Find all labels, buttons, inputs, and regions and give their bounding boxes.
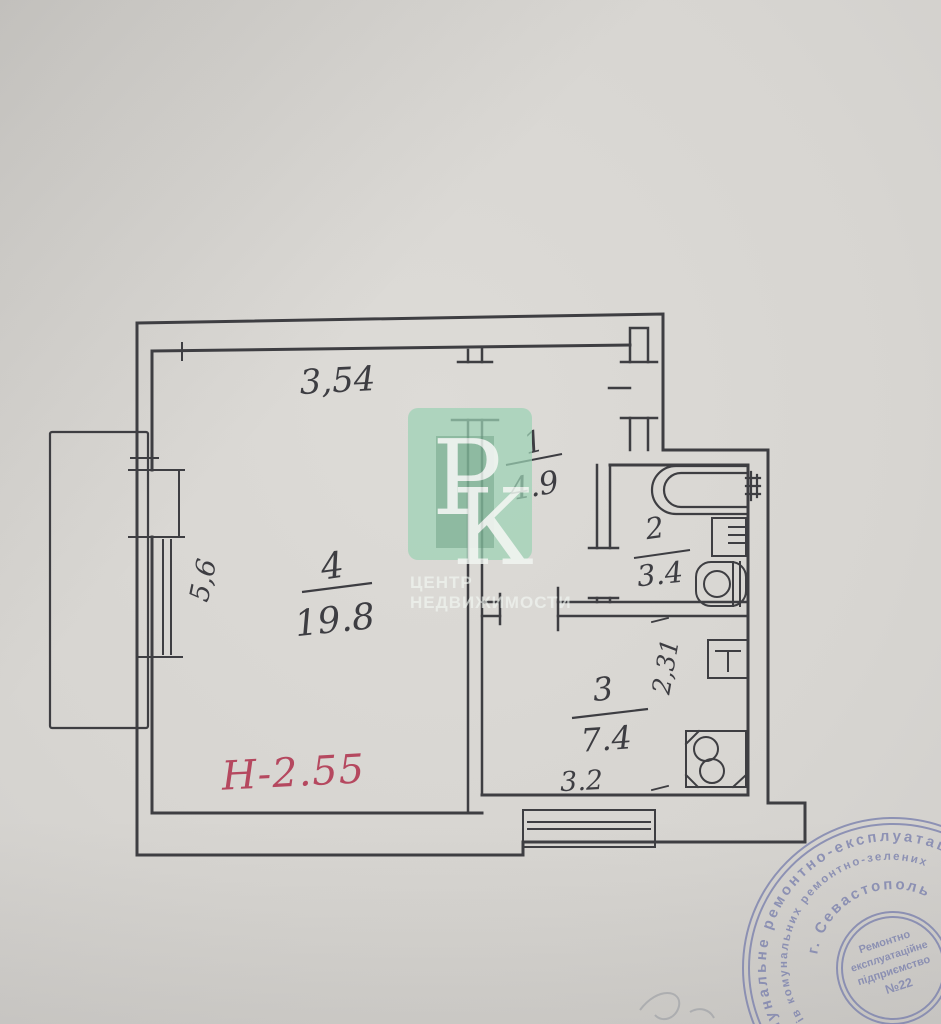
room-3-area: 7.4 (580, 718, 633, 759)
ceiling-height-note: Н-2.55 (219, 746, 366, 799)
dim-top-width: 3,54 (299, 359, 377, 403)
watermark-caption-line1: ЦЕНТР (410, 573, 473, 592)
watermark-caption-line2: НЕДВИЖИМОСТИ (410, 593, 572, 612)
watermark-letter-k: К (452, 466, 534, 589)
scanned-floor-plan-photo: 3,54 5,6 4 19.8 1 4.9 2 3.4 3 7.4 3.2 2,… (0, 0, 941, 1024)
room-4-area: 19.8 (293, 596, 377, 645)
dim-kitchen-width: 3.2 (559, 765, 604, 798)
room-2-area: 3.4 (635, 555, 684, 594)
room-3-number: 3 (591, 669, 615, 709)
